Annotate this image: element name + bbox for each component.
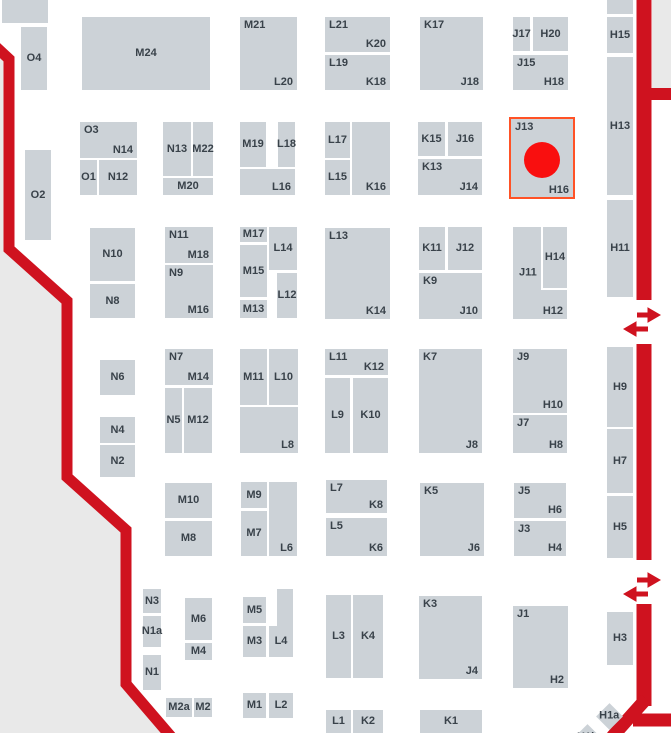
booth-label: K10 xyxy=(360,410,380,421)
booth-label: J8 xyxy=(466,440,478,451)
booth-K9-J10[interactable]: K9J10 xyxy=(419,273,482,319)
booth-label: L12 xyxy=(278,290,297,301)
booth-label: N10 xyxy=(102,249,122,260)
booth-label: M2 xyxy=(195,702,210,713)
booth-label: N2 xyxy=(110,456,124,467)
booth-N12[interactable]: N12 xyxy=(99,160,137,195)
booth-N1a[interactable]: N1a xyxy=(143,616,161,647)
booth-O3-N14[interactable]: O3N14 xyxy=(80,122,137,158)
booth-label: H11 xyxy=(610,243,630,254)
booth-N6[interactable]: N6 xyxy=(100,360,135,395)
booth-label: J11 xyxy=(519,268,537,279)
booth-label: L3 xyxy=(332,631,345,642)
booth-N3[interactable]: N3 xyxy=(143,589,161,613)
booth-K1[interactable]: K1 xyxy=(420,710,482,733)
booth-label: H14 xyxy=(545,252,565,263)
booth-label: H7 xyxy=(613,456,627,467)
booth-label: J1 xyxy=(517,609,529,620)
booth-H13[interactable]: H13 xyxy=(607,57,633,195)
booth-N5[interactable]: N5 xyxy=(165,388,182,453)
booth-label: J9 xyxy=(517,352,529,363)
booth-label: L14 xyxy=(274,243,293,254)
booth-label: M14 xyxy=(188,372,209,383)
booth-label: H12 xyxy=(543,306,563,317)
booth-label: M19 xyxy=(242,139,263,150)
booth-K17-J18[interactable]: K17J18 xyxy=(420,17,483,90)
booth-M20[interactable]: M20 xyxy=(163,178,213,195)
booth-label: J6 xyxy=(468,543,480,554)
booth-label: K20 xyxy=(366,39,386,50)
booth-label: J7 xyxy=(517,418,529,429)
booth-M2a[interactable]: M2a xyxy=(166,698,192,717)
booth-label: H20 xyxy=(540,29,560,40)
booth-label: L1 xyxy=(332,716,345,727)
booth-J3-H4[interactable]: J3H4 xyxy=(514,521,566,556)
booth-O2[interactable]: O2 xyxy=(25,150,51,240)
booth-L10[interactable]: L10 xyxy=(269,349,298,405)
booth-L14[interactable]: L14 xyxy=(269,227,297,270)
booth-label: K14 xyxy=(366,306,386,317)
booth-label: H1a xyxy=(599,711,619,722)
booth-N1[interactable]: N1 xyxy=(143,655,161,690)
booth-label: L13 xyxy=(329,231,348,242)
crossing-arrows-icon xyxy=(624,573,660,601)
booth-label: J18 xyxy=(461,77,479,88)
booth-label: M3 xyxy=(247,636,262,647)
booth-M6[interactable]: M6 xyxy=(185,598,212,640)
booth-J5-H6[interactable]: J5H6 xyxy=(514,483,566,518)
booth-L8[interactable]: L8 xyxy=(240,407,298,453)
booth-label: M12 xyxy=(187,415,208,426)
booth-M24[interactable]: M24 xyxy=(82,17,210,90)
booth-label: L15 xyxy=(328,172,347,183)
booth-label: O1 xyxy=(81,172,96,183)
booth-label: M20 xyxy=(177,181,198,192)
booth-O4[interactable]: O4 xyxy=(21,27,47,90)
booth-label: L17 xyxy=(328,135,347,146)
booth-label: K18 xyxy=(366,77,386,88)
booth-M17[interactable]: M17 xyxy=(240,227,267,242)
booth-label: N3 xyxy=(145,596,159,607)
booth-L4[interactable]: L4 xyxy=(269,626,293,657)
booth-N8[interactable]: N8 xyxy=(90,284,135,318)
booth-label: O3 xyxy=(84,125,99,136)
booth-label: N13 xyxy=(167,144,187,155)
booth-L13-K14[interactable]: L13K14 xyxy=(325,228,390,319)
booth-K15[interactable]: K15 xyxy=(418,122,445,156)
booth-H15[interactable]: H15 xyxy=(607,17,633,53)
booth-label: M24 xyxy=(135,48,156,59)
outside-area-top-right xyxy=(652,0,671,88)
booth-N2[interactable]: N2 xyxy=(100,445,135,477)
booth-label: H3 xyxy=(613,633,627,644)
booth-H1b[interactable]: H1b xyxy=(574,724,601,733)
booth-label: L9 xyxy=(331,410,344,421)
booth-M11[interactable]: M11 xyxy=(240,349,267,405)
booth-K10[interactable]: K10 xyxy=(353,378,388,453)
booth-M13[interactable]: M13 xyxy=(240,300,267,318)
booth-J16[interactable]: J16 xyxy=(448,122,482,156)
booth-L17[interactable]: L17 xyxy=(325,122,350,158)
booth-M10[interactable]: M10 xyxy=(165,483,212,518)
booth-L2[interactable]: L2 xyxy=(269,693,293,718)
booth-label: H2 xyxy=(550,675,564,686)
booth-L12[interactable]: L12 xyxy=(277,273,297,318)
booth-H1a[interactable]: H1a xyxy=(596,703,623,730)
booth-label: J12 xyxy=(456,243,474,254)
booth-label: L20 xyxy=(274,77,293,88)
booth-label: J3 xyxy=(518,524,530,535)
booth-label: M11 xyxy=(243,372,264,383)
booth-K7-J8[interactable]: K7J8 xyxy=(419,349,482,453)
booth-N11-M18[interactable]: N11M18 xyxy=(165,227,213,263)
booth-label: L2 xyxy=(275,700,288,711)
booth-label: N7 xyxy=(169,352,183,363)
booth-label: N1 xyxy=(145,667,159,678)
booth-label: K6 xyxy=(369,543,383,554)
booth-label: K12 xyxy=(364,362,384,373)
booth-M1[interactable]: M1 xyxy=(243,693,266,718)
booth-M21-L20[interactable]: M21L20 xyxy=(240,17,297,90)
booth-label: H15 xyxy=(610,30,630,41)
booth-label: H5 xyxy=(613,522,627,533)
booth-label: N11 xyxy=(169,230,189,241)
booth-label: K4 xyxy=(361,631,375,642)
booth-J17[interactable]: J17 xyxy=(513,17,530,51)
booth-H20[interactable]: H20 xyxy=(533,17,568,51)
booth-L5-K6[interactable]: L5K6 xyxy=(326,518,387,556)
booth-label: L4 xyxy=(275,636,288,647)
booth-block-b[interactable] xyxy=(607,0,633,14)
booth-K13-J14[interactable]: K13J14 xyxy=(418,159,482,195)
booth-label: M15 xyxy=(243,266,264,277)
booth-N13[interactable]: N13 xyxy=(163,122,191,176)
booth-N4[interactable]: N4 xyxy=(100,417,135,443)
booth-label: M5 xyxy=(247,605,262,616)
booth-label: N12 xyxy=(108,172,128,183)
booth-label: L21 xyxy=(329,20,348,31)
booth-label: N14 xyxy=(113,145,133,156)
booth-block-a[interactable] xyxy=(2,0,48,23)
booth-label: L19 xyxy=(329,58,348,69)
booth-label: M7 xyxy=(246,528,261,539)
booth-L1[interactable]: L1 xyxy=(326,710,351,733)
booth-J15-H18[interactable]: J15H18 xyxy=(513,55,568,90)
booth-label: N1a xyxy=(142,626,162,637)
booth-label: H10 xyxy=(543,400,563,411)
booth-label: K13 xyxy=(422,162,442,173)
booth-M2[interactable]: M2 xyxy=(194,698,212,717)
booth-L21-K20[interactable]: L21K20 xyxy=(325,17,390,52)
booth-label: N8 xyxy=(105,296,119,307)
booth-label: L8 xyxy=(281,440,294,451)
booth-label: K3 xyxy=(423,599,437,610)
booth-label: M16 xyxy=(188,305,209,316)
booth-L4-upper[interactable] xyxy=(277,589,293,626)
booth-label: N6 xyxy=(110,372,124,383)
booth-M8[interactable]: M8 xyxy=(165,521,212,556)
booth-label: M17 xyxy=(243,229,264,240)
booth-H5[interactable]: H5 xyxy=(607,496,633,558)
booth-label: K11 xyxy=(422,243,442,254)
booth-K3-J4[interactable]: K3J4 xyxy=(419,596,482,679)
booth-label: J17 xyxy=(512,29,530,40)
booth-label: L16 xyxy=(272,182,291,193)
booth-H3[interactable]: H3 xyxy=(607,612,633,665)
booth-K4[interactable]: K4 xyxy=(353,595,383,678)
booth-L6[interactable]: L6 xyxy=(269,482,297,556)
booth-L9[interactable]: L9 xyxy=(325,378,350,453)
booth-label: K7 xyxy=(423,352,437,363)
booth-O1[interactable]: O1 xyxy=(80,160,97,195)
hall-floor-plan: O4M24M21L20L21K20L19K18K17J18J17H20J15H1… xyxy=(0,0,671,733)
booth-label: L18 xyxy=(277,139,296,150)
booth-label: H4 xyxy=(548,543,562,554)
booth-N10[interactable]: N10 xyxy=(90,228,135,281)
booth-M19[interactable]: M19 xyxy=(240,122,266,167)
booth-label: L5 xyxy=(330,521,343,532)
booth-M5[interactable]: M5 xyxy=(243,597,266,623)
booth-label: N5 xyxy=(166,415,180,426)
booth-label: M1 xyxy=(247,700,262,711)
booth-L15[interactable]: L15 xyxy=(325,160,350,195)
booth-label: L7 xyxy=(330,483,343,494)
booth-L19-K18[interactable]: L19K18 xyxy=(325,55,390,90)
crossing-arrows-icon xyxy=(624,308,660,336)
booth-J12[interactable]: J12 xyxy=(448,227,482,270)
booth-label: L11 xyxy=(329,352,347,363)
booth-M7[interactable]: M7 xyxy=(241,511,267,556)
booth-label: L6 xyxy=(280,543,293,554)
booth-label: J4 xyxy=(466,666,478,677)
booth-J7-H8[interactable]: J7H8 xyxy=(513,415,567,453)
booth-M15[interactable]: M15 xyxy=(240,245,267,297)
booth-label: M9 xyxy=(246,490,261,501)
booth-L18[interactable]: L18 xyxy=(278,122,295,167)
booth-label: H8 xyxy=(549,440,563,451)
booth-H14[interactable]: H14 xyxy=(541,227,567,290)
booth-M4[interactable]: M4 xyxy=(185,643,212,660)
booth-label: K16 xyxy=(366,182,386,193)
booth-label: K2 xyxy=(361,716,375,727)
booth-J1-H2[interactable]: J1H2 xyxy=(513,606,568,688)
booth-label: M8 xyxy=(181,533,196,544)
booth-label: N9 xyxy=(169,268,183,279)
booth-label: K8 xyxy=(369,500,383,511)
location-marker xyxy=(524,142,560,178)
booth-K11[interactable]: K11 xyxy=(419,227,445,270)
booth-label: J5 xyxy=(518,486,530,497)
booth-label: M2a xyxy=(168,702,189,713)
booth-label: O2 xyxy=(31,190,46,201)
booth-K5-J6[interactable]: K5J6 xyxy=(420,483,484,556)
booth-J9-H10[interactable]: J9H10 xyxy=(513,349,567,413)
booth-M22[interactable]: M22 xyxy=(193,122,213,176)
booth-label: H6 xyxy=(548,505,562,516)
booth-label: M4 xyxy=(191,646,206,657)
booth-N9-M16[interactable]: N9M16 xyxy=(165,265,213,318)
booth-M3[interactable]: M3 xyxy=(243,626,266,657)
booth-label: K1 xyxy=(444,716,458,727)
booth-L11-K12[interactable]: L11K12 xyxy=(325,349,388,375)
booth-label: J15 xyxy=(517,58,535,69)
booth-label: K15 xyxy=(421,134,441,145)
booth-M9[interactable]: M9 xyxy=(241,482,267,508)
booth-label: H18 xyxy=(544,77,564,88)
booth-label: H13 xyxy=(610,121,630,132)
booth-label: N4 xyxy=(110,425,124,436)
booth-K2[interactable]: K2 xyxy=(353,710,383,733)
booth-label: J10 xyxy=(460,306,478,317)
booth-M12[interactable]: M12 xyxy=(184,388,212,453)
booth-L7-K8[interactable]: L7K8 xyxy=(326,480,387,513)
booth-label: K5 xyxy=(424,486,438,497)
booth-label: K9 xyxy=(423,276,437,287)
booth-label: L10 xyxy=(274,372,293,383)
booth-K16[interactable]: K16 xyxy=(352,122,390,195)
booth-label: M18 xyxy=(188,250,209,261)
booth-L3[interactable]: L3 xyxy=(326,595,351,678)
booth-H11[interactable]: H11 xyxy=(607,200,633,297)
booth-label: H9 xyxy=(613,382,627,393)
booth-label: M10 xyxy=(178,495,199,506)
booth-label: J14 xyxy=(460,182,478,193)
booth-H7[interactable]: H7 xyxy=(607,429,633,493)
booth-N7-M14[interactable]: N7M14 xyxy=(165,349,213,385)
booth-label: M21 xyxy=(244,20,265,31)
booth-L16[interactable]: L16 xyxy=(240,169,295,195)
booth-H9[interactable]: H9 xyxy=(607,347,633,427)
booth-label: O4 xyxy=(27,53,42,64)
booth-label: M22 xyxy=(192,144,213,155)
booth-label: K17 xyxy=(424,20,444,31)
booth-label: M13 xyxy=(243,304,264,315)
booth-label: J16 xyxy=(456,134,474,145)
booth-label: M6 xyxy=(191,614,206,625)
